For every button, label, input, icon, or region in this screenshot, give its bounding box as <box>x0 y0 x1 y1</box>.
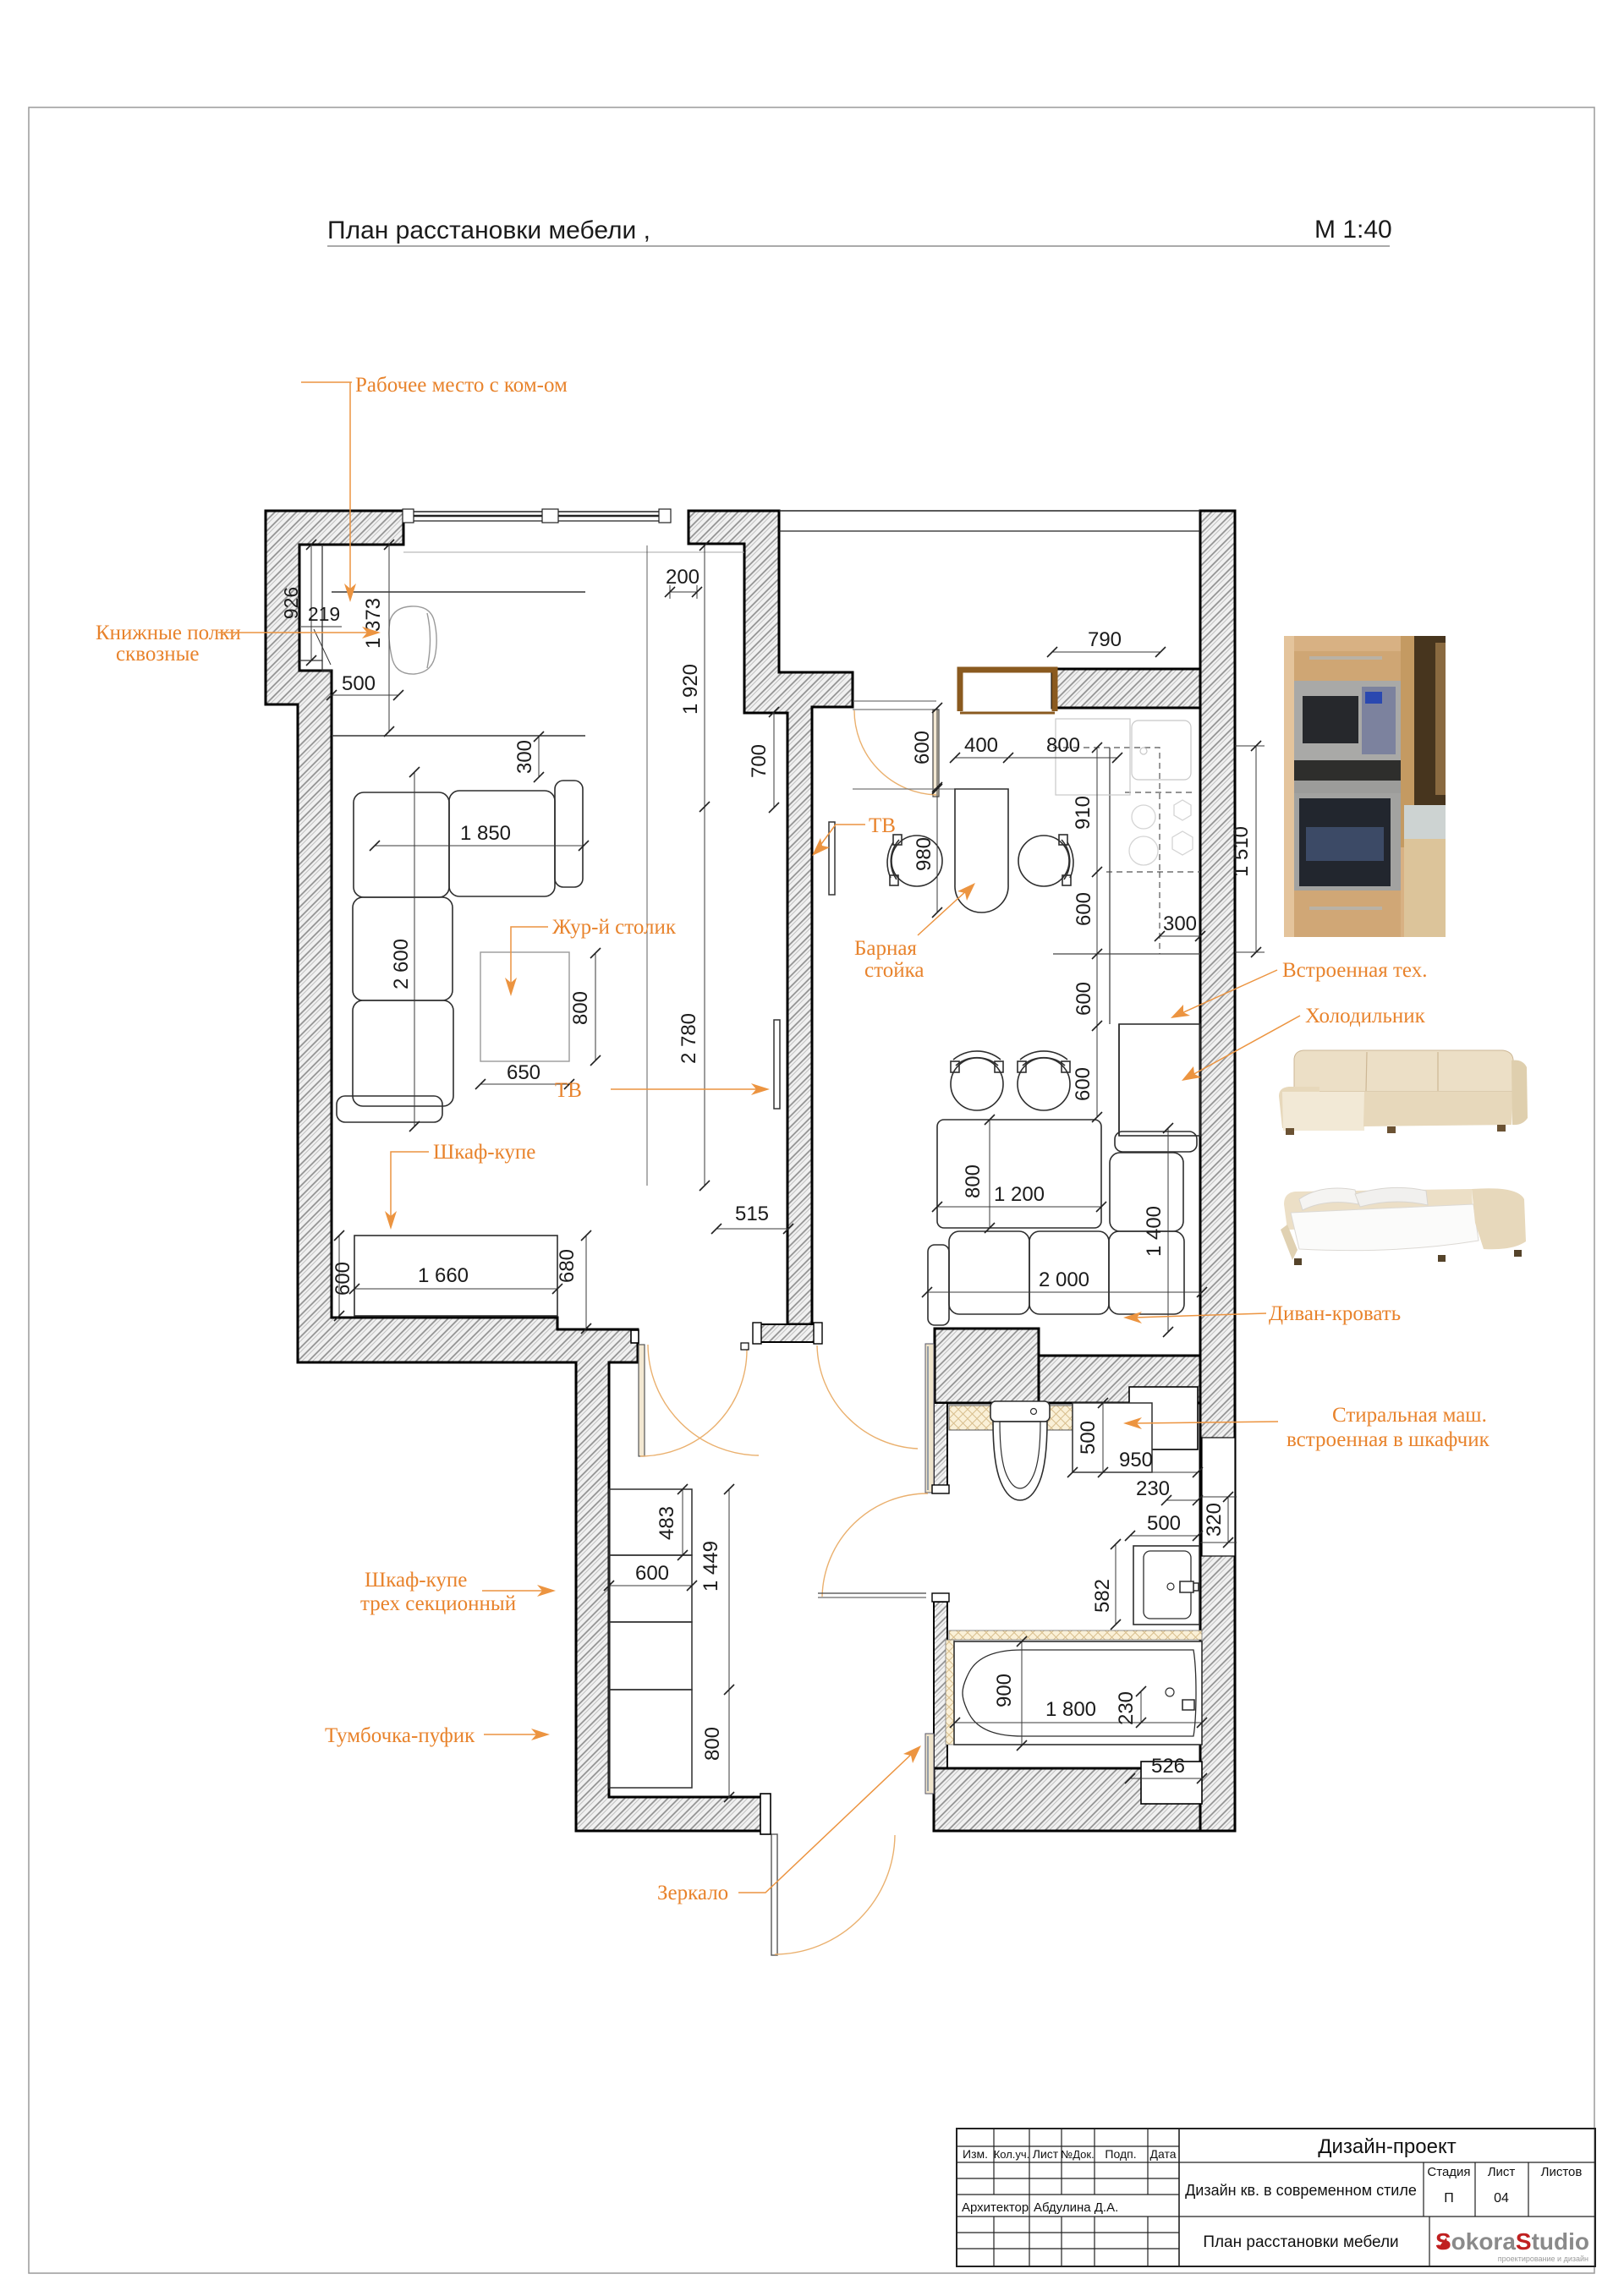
svg-text:Кол.уч.: Кол.уч. <box>994 2148 1030 2161</box>
svg-text:Встроенная тех.: Встроенная тех. <box>1282 959 1427 982</box>
svg-text:200: 200 <box>666 566 700 589</box>
svg-text:230: 230 <box>1136 1477 1170 1500</box>
svg-text:Стадия: Стадия <box>1427 2165 1470 2179</box>
svg-text:ТВ: ТВ <box>555 1079 582 1102</box>
svg-text:526: 526 <box>1151 1755 1185 1778</box>
svg-text:П: П <box>1444 2191 1454 2206</box>
svg-text:План расстановки мебели ,: План расстановки мебели , <box>327 216 650 244</box>
svg-text:1 660: 1 660 <box>418 1264 469 1287</box>
svg-text:Архитектор: Архитектор <box>962 2200 1029 2215</box>
svg-text:500: 500 <box>1147 1512 1181 1535</box>
svg-text:трех секционный: трех секционный <box>360 1592 516 1615</box>
svg-text:№Док.: №Док. <box>1061 2148 1094 2161</box>
svg-text:1 850: 1 850 <box>460 822 511 845</box>
svg-text:стойка: стойка <box>864 959 924 982</box>
svg-text:Жур-й столик: Жур-й столик <box>552 916 677 939</box>
svg-text:320: 320 <box>1203 1503 1226 1537</box>
svg-text:Зеркало: Зеркало <box>657 1882 728 1904</box>
svg-text:700: 700 <box>748 744 771 778</box>
svg-text:400: 400 <box>964 734 998 757</box>
svg-text:600: 600 <box>1073 982 1095 1016</box>
svg-text:2 600: 2 600 <box>390 939 413 989</box>
svg-text:1 920: 1 920 <box>679 664 702 715</box>
svg-text:500: 500 <box>1077 1421 1100 1455</box>
svg-text:Стиральная маш.: Стиральная маш. <box>1332 1404 1487 1427</box>
svg-text:800: 800 <box>962 1164 985 1198</box>
svg-text:926: 926 <box>280 587 302 619</box>
svg-text:600: 600 <box>1073 892 1095 926</box>
svg-text:04: 04 <box>1494 2191 1509 2206</box>
svg-text:Шкаф-купе: Шкаф-купе <box>433 1141 535 1164</box>
svg-text:ТВ: ТВ <box>869 814 896 837</box>
svg-text:проектирование и дизайн: проектирование и дизайн <box>1498 2255 1588 2263</box>
svg-text:600: 600 <box>635 1562 669 1585</box>
svg-text:сквозные: сквозные <box>116 643 200 666</box>
svg-text:1 510: 1 510 <box>1230 826 1253 877</box>
svg-text:Барная: Барная <box>854 937 917 960</box>
svg-text:Подп.: Подп. <box>1105 2147 1136 2161</box>
svg-text:1 400: 1 400 <box>1143 1206 1166 1257</box>
svg-text:790: 790 <box>1088 628 1122 651</box>
svg-text:483: 483 <box>656 1506 678 1540</box>
svg-text:Холодильник: Холодильник <box>1305 1005 1426 1027</box>
svg-text:300: 300 <box>513 740 536 774</box>
svg-text:Рабочее место с ком-ом: Рабочее место с ком-ом <box>355 374 568 397</box>
svg-text:Изм.: Изм. <box>963 2147 988 2161</box>
svg-text:910: 910 <box>1072 796 1095 830</box>
svg-text:М 1:40: М 1:40 <box>1314 216 1392 244</box>
svg-text:2 780: 2 780 <box>678 1013 700 1064</box>
svg-text:582: 582 <box>1091 1579 1114 1613</box>
svg-text:1 373: 1 373 <box>362 598 385 649</box>
svg-text:Дата: Дата <box>1149 2147 1176 2161</box>
svg-text:650: 650 <box>507 1061 540 1084</box>
svg-text:600: 600 <box>911 731 934 764</box>
svg-text:SokoraStudio: SokoraStudio <box>1435 2228 1589 2255</box>
svg-text:680: 680 <box>556 1249 579 1283</box>
svg-text:600: 600 <box>1072 1067 1095 1101</box>
svg-text:980: 980 <box>913 837 935 871</box>
svg-text:Дизайн-проект: Дизайн-проект <box>1318 2135 1456 2158</box>
svg-text:1 200: 1 200 <box>994 1183 1045 1206</box>
svg-text:230: 230 <box>1115 1691 1138 1725</box>
svg-text:Лист: Лист <box>1033 2147 1059 2161</box>
svg-text:Тумбочка-пуфик: Тумбочка-пуфик <box>325 1724 475 1747</box>
svg-text:План расстановки мебели: План расстановки мебели <box>1203 2233 1398 2251</box>
svg-text:1 800: 1 800 <box>1045 1698 1096 1721</box>
svg-text:800: 800 <box>701 1727 724 1761</box>
svg-text:515: 515 <box>735 1203 769 1225</box>
svg-text:Абдулина Д.А.: Абдулина Д.А. <box>1034 2200 1118 2215</box>
svg-text:900: 900 <box>993 1674 1016 1707</box>
svg-text:219: 219 <box>308 603 340 625</box>
svg-text:2 000: 2 000 <box>1039 1269 1089 1291</box>
svg-text:300: 300 <box>1163 912 1197 935</box>
svg-text:Листов: Листов <box>1541 2165 1583 2179</box>
svg-text:500: 500 <box>342 672 376 695</box>
svg-text:800: 800 <box>1046 734 1080 757</box>
svg-text:800: 800 <box>569 991 592 1025</box>
svg-text:Лист: Лист <box>1488 2165 1516 2179</box>
svg-text:Дизайн кв. в современном стиле: Дизайн кв. в современном стиле <box>1185 2182 1417 2199</box>
svg-text:1 449: 1 449 <box>700 1541 722 1592</box>
svg-text:950: 950 <box>1119 1449 1153 1471</box>
svg-text:встроенная в шкафчик: встроенная в шкафчик <box>1287 1428 1490 1451</box>
svg-text:Диван-кровать: Диван-кровать <box>1269 1302 1401 1325</box>
svg-text:600: 600 <box>332 1262 354 1296</box>
svg-text:Шкаф-купе: Шкаф-купе <box>365 1569 467 1592</box>
